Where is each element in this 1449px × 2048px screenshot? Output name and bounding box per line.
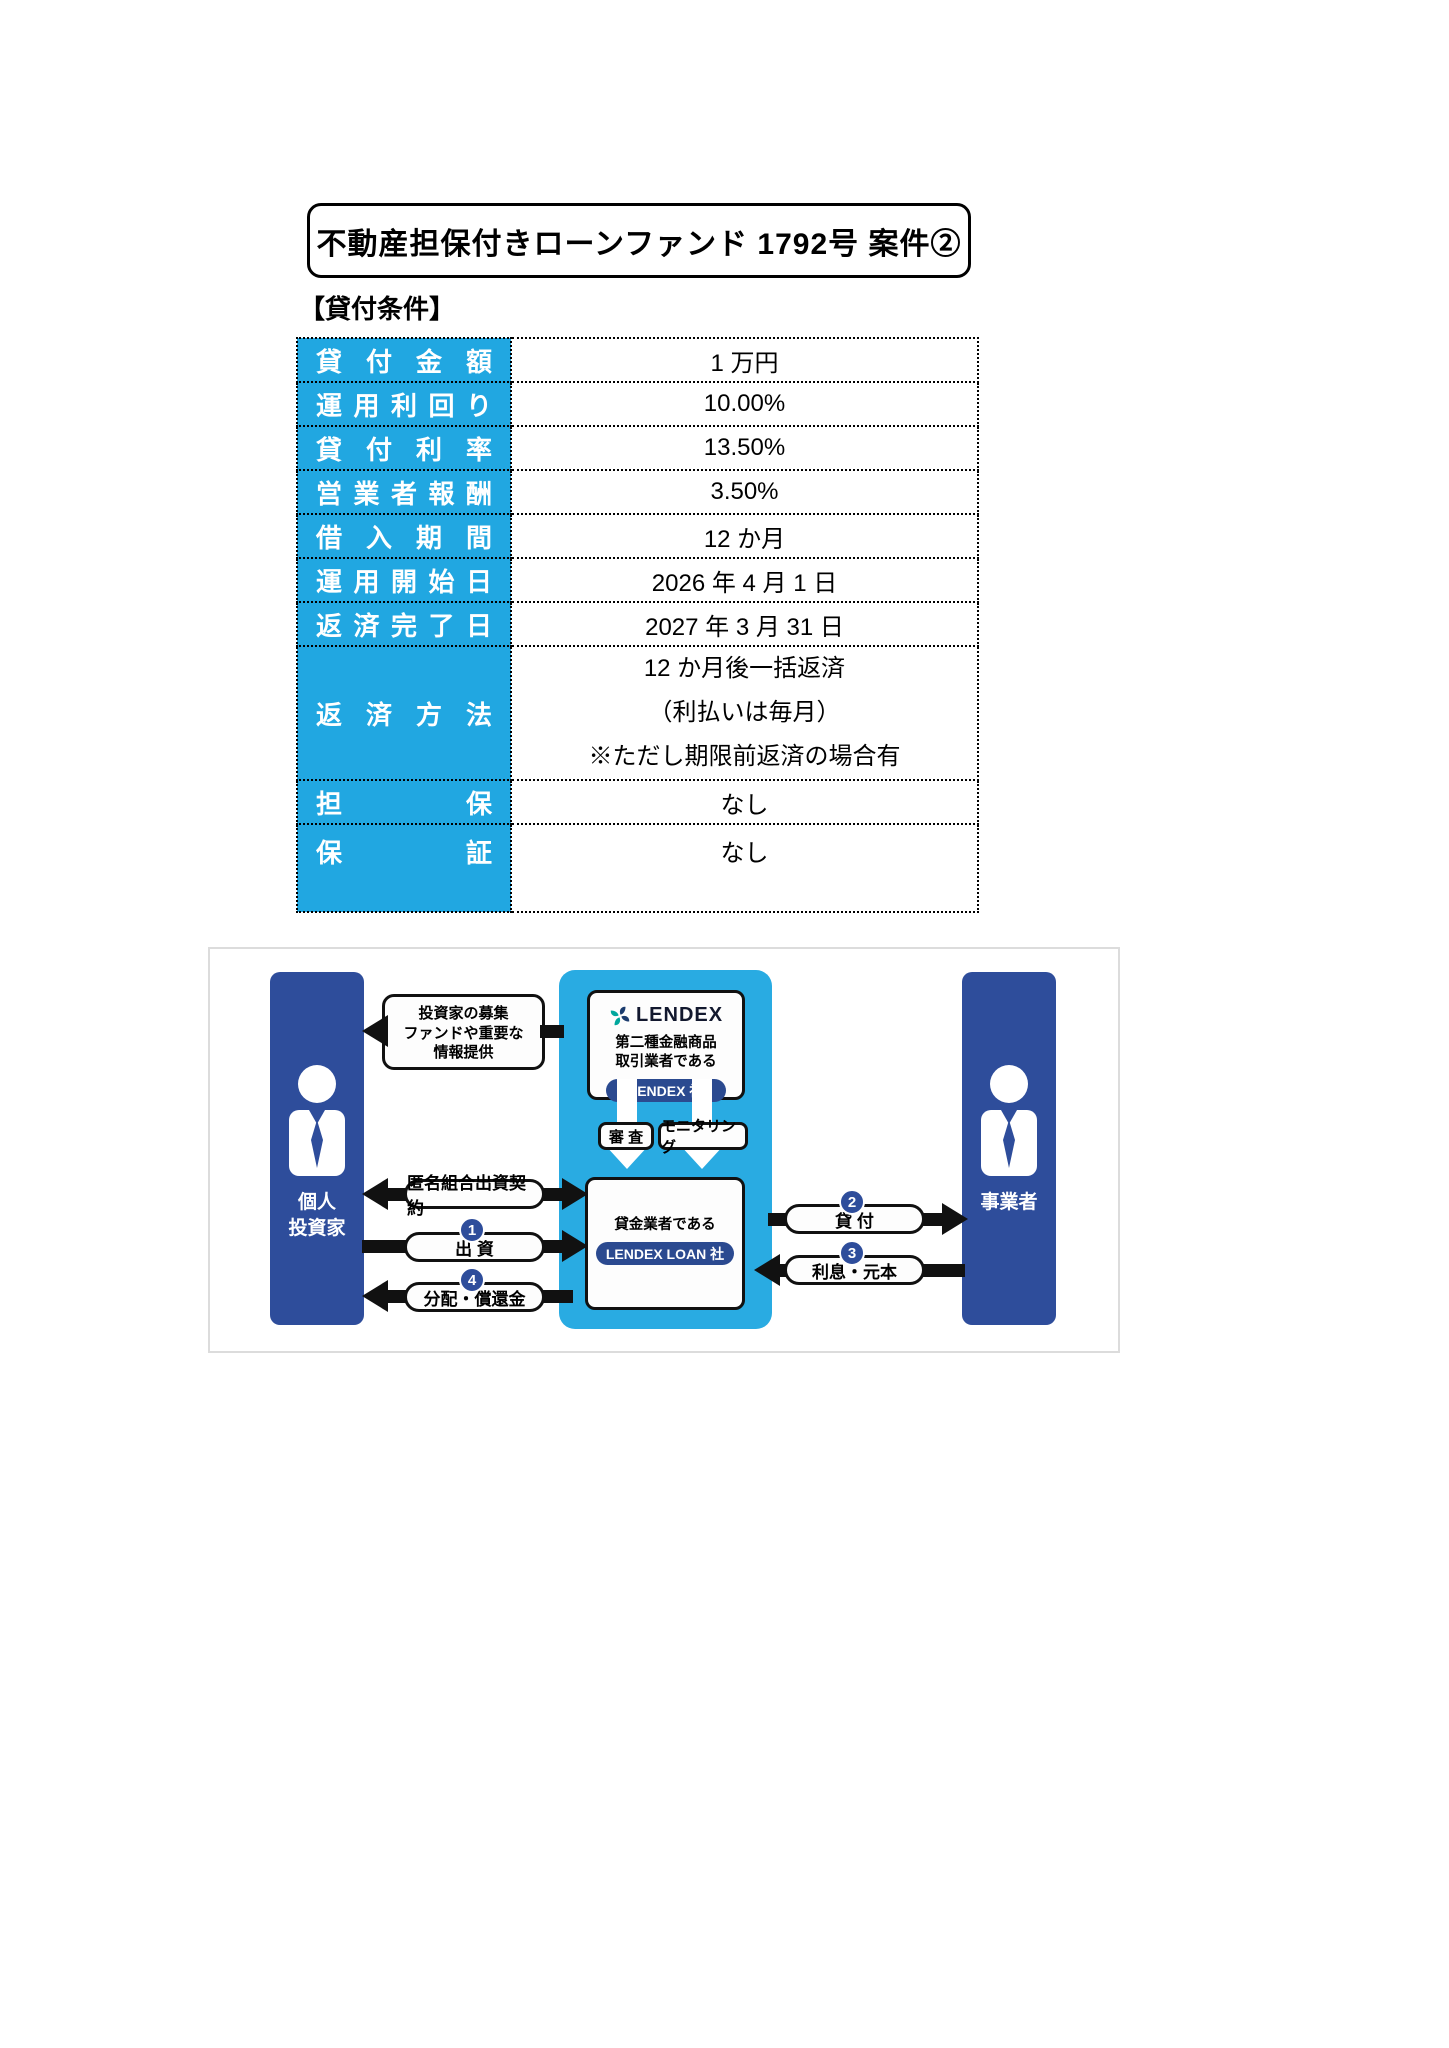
row-value: 2027 年 3 月 31 日 [511,602,978,646]
lendex-loan-box: 貸金業者である LENDEX LOAN 社 [585,1177,745,1310]
lendex-loan-pill: LENDEX LOAN 社 [596,1242,734,1265]
row-label: 保証 [297,824,511,912]
lendex-logo-text: LENDEX [636,1004,723,1027]
row-label: 借入期間 [297,514,511,558]
info-arrow-head [362,1015,388,1047]
distribution-arrow-left [362,1280,388,1312]
lending-arrow-right [942,1203,968,1235]
contract-stem [386,1188,406,1201]
investor-label: 個人 投資家 [270,1190,364,1241]
row-label: 返済完了日 [297,602,511,646]
title-box: 不動産担保付きローンファンド 1792号 案件② [307,203,971,278]
contract-stem [543,1188,564,1201]
repayment-arrow-left [754,1254,780,1286]
investment-stem [543,1240,564,1253]
fund-info-box: 投資家の募集 ファンドや重要な 情報提供 [382,994,545,1070]
lender-description: 貸金業者である [588,1216,742,1235]
row-value: 1 万円 [511,338,978,382]
monitoring-label: モニタリング [658,1122,748,1150]
repayment-line: ※ただし期限前返済の場合有 [512,735,977,779]
repayment-line: （利払いは毎月） [512,691,977,735]
person-icon [975,1062,1043,1184]
row-label: 運用利回り [297,382,511,426]
investment-stem [362,1240,406,1253]
row-label: 営業者報酬 [297,470,511,514]
table-row-repayment-method: 返済方法 12 か月後一括返済 （利払いは毎月） ※ただし期限前返済の場合有 [297,646,978,780]
contract-arrow-left [362,1178,388,1210]
row-value: 2026 年 4 月 1 日 [511,558,978,602]
business-label: 事業者 [962,1190,1056,1216]
info-arrow-stem [540,1025,564,1038]
lendex-logo: LENDEX [590,1004,742,1027]
row-value: 3.50% [511,470,978,514]
row-value: なし [511,824,978,912]
repayment-line: 12 か月後一括返済 [512,647,977,691]
table-row: 運用利回り 10.00% [297,382,978,426]
lending-number-badge: 2 [839,1189,865,1215]
table-row: 返済完了日 2027 年 3 月 31 日 [297,602,978,646]
distribution-number-badge: 4 [459,1267,485,1293]
row-label: 貸付利率 [297,426,511,470]
table-row: 借入期間 12 か月 [297,514,978,558]
table-row: 担保 なし [297,780,978,824]
lendex-broker-box: LENDEX 第二種金融商品 取引業者である LENDEX 社 [587,990,745,1100]
scheme-diagram: 個人 投資家 事業者 [208,947,1120,1353]
broker-description: 第二種金融商品 取引業者である [590,1034,742,1072]
row-label: 返済方法 [297,646,511,780]
row-value: 13.50% [511,426,978,470]
row-value: なし [511,780,978,824]
table-row: 保証 なし [297,824,978,912]
distribution-stem [543,1290,573,1303]
row-label: 担保 [297,780,511,824]
loan-conditions-table: 貸付金額 1 万円 運用利回り 10.00% 貸付利率 13.50% 営業者報酬… [296,337,979,913]
screening-label: 審 査 [598,1122,654,1150]
lending-stem [923,1213,944,1226]
lendex-logo-icon [609,1005,631,1027]
table-row: 貸付金額 1 万円 [297,338,978,382]
table-row: 貸付利率 13.50% [297,426,978,470]
row-label: 運用開始日 [297,558,511,602]
investor-column: 個人 投資家 [270,972,364,1325]
row-value: 10.00% [511,382,978,426]
page-title: 不動産担保付きローンファンド 1792号 案件② [316,219,961,263]
document-page: 不動産担保付きローンファンド 1792号 案件② 【貸付条件】 貸付金額 1 万… [0,0,1449,2048]
business-column: 事業者 [962,972,1056,1325]
repayment-stem [923,1264,965,1277]
person-icon [283,1062,351,1184]
row-label: 貸付金額 [297,338,511,382]
table-row: 営業者報酬 3.50% [297,470,978,514]
contract-arrow-right [562,1178,588,1210]
distribution-stem [386,1290,406,1303]
contract-pill: 匿名組合出資契約 [404,1179,545,1209]
section-heading: 【貸付条件】 [299,289,455,326]
investment-number-badge: 1 [459,1217,485,1243]
row-value: 12 か月 [511,514,978,558]
repayment-number-badge: 3 [839,1240,865,1266]
investment-arrow-right [562,1230,588,1262]
table-row: 運用開始日 2026 年 4 月 1 日 [297,558,978,602]
row-value: 12 か月後一括返済 （利払いは毎月） ※ただし期限前返済の場合有 [511,646,978,780]
